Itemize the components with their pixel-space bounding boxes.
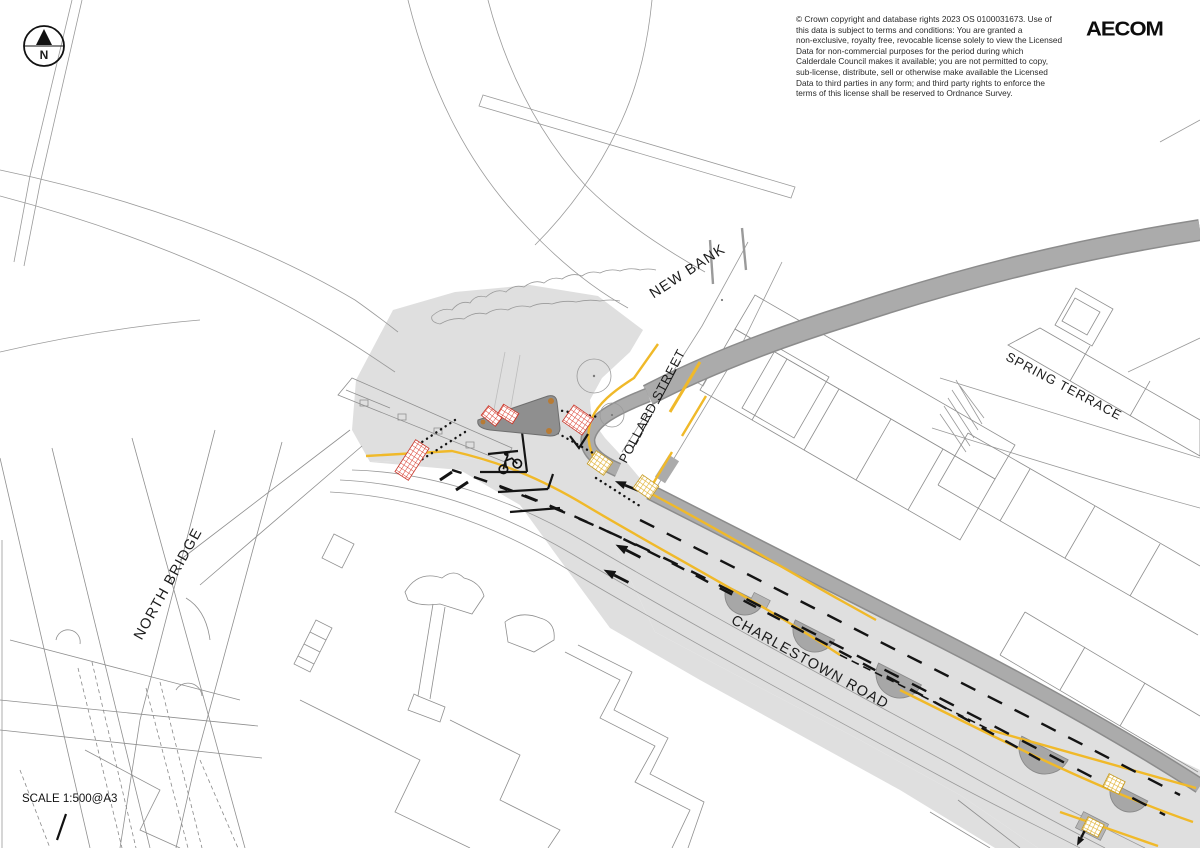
scale-tick: [57, 814, 66, 840]
scale-label: SCALE 1:500@A3: [22, 793, 117, 805]
aecom-logo: AECOM: [1086, 17, 1163, 41]
street-label-spring-terrace: SPRING TERRACE: [1003, 349, 1124, 423]
copyright-notice: © Crown copyright and database rights 20…: [796, 14, 1082, 99]
site-plan-drawing: NEW BANK POLLARD STREET SPRING TERRACE N…: [0, 0, 1200, 848]
street-label-new-bank: NEW BANK: [647, 241, 729, 302]
north-arrow-pointer: [36, 29, 52, 45]
carriageway-surface: [352, 285, 1200, 848]
engineering-plan-sheet: NEW BANK POLLARD STREET SPRING TERRACE N…: [0, 0, 1200, 848]
street-label-north-bridge: NORTH BRIDGE: [131, 525, 206, 642]
north-arrow-letter: N: [40, 48, 49, 62]
north-arrow: N: [24, 26, 64, 66]
